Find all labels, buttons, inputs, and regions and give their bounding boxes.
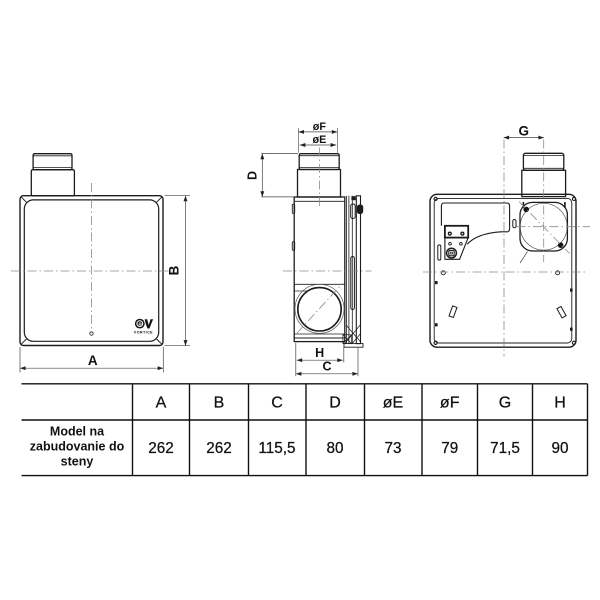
svg-text:øE: øE — [383, 395, 403, 412]
svg-text:zabudovanie do: zabudovanie do — [30, 440, 125, 454]
svg-text:71,5: 71,5 — [490, 440, 520, 457]
svg-text:D: D — [246, 171, 260, 180]
svg-text:262: 262 — [206, 440, 232, 457]
svg-text:Model na: Model na — [50, 425, 105, 439]
svg-text:262: 262 — [148, 440, 174, 457]
svg-text:C: C — [271, 395, 283, 412]
svg-text:øE: øE — [313, 134, 327, 146]
svg-text:80: 80 — [326, 440, 343, 457]
svg-text:VORTICE: VORTICE — [134, 331, 153, 335]
svg-text:B: B — [166, 265, 181, 275]
svg-text:115,5: 115,5 — [258, 440, 295, 457]
svg-text:G: G — [499, 395, 511, 412]
svg-text:79: 79 — [441, 440, 458, 457]
svg-text:90: 90 — [551, 440, 568, 457]
svg-text:B: B — [214, 395, 225, 412]
svg-text:D: D — [329, 395, 341, 412]
svg-text:C: C — [322, 360, 331, 374]
svg-text:øF: øF — [313, 121, 327, 133]
svg-text:steny: steny — [61, 455, 94, 469]
svg-text:øF: øF — [440, 395, 460, 412]
svg-text:A: A — [156, 395, 167, 412]
svg-text:H: H — [315, 346, 324, 360]
svg-text:A: A — [88, 353, 98, 368]
svg-text:H: H — [554, 395, 566, 412]
svg-text:G: G — [519, 124, 530, 139]
svg-text:73: 73 — [384, 440, 401, 457]
